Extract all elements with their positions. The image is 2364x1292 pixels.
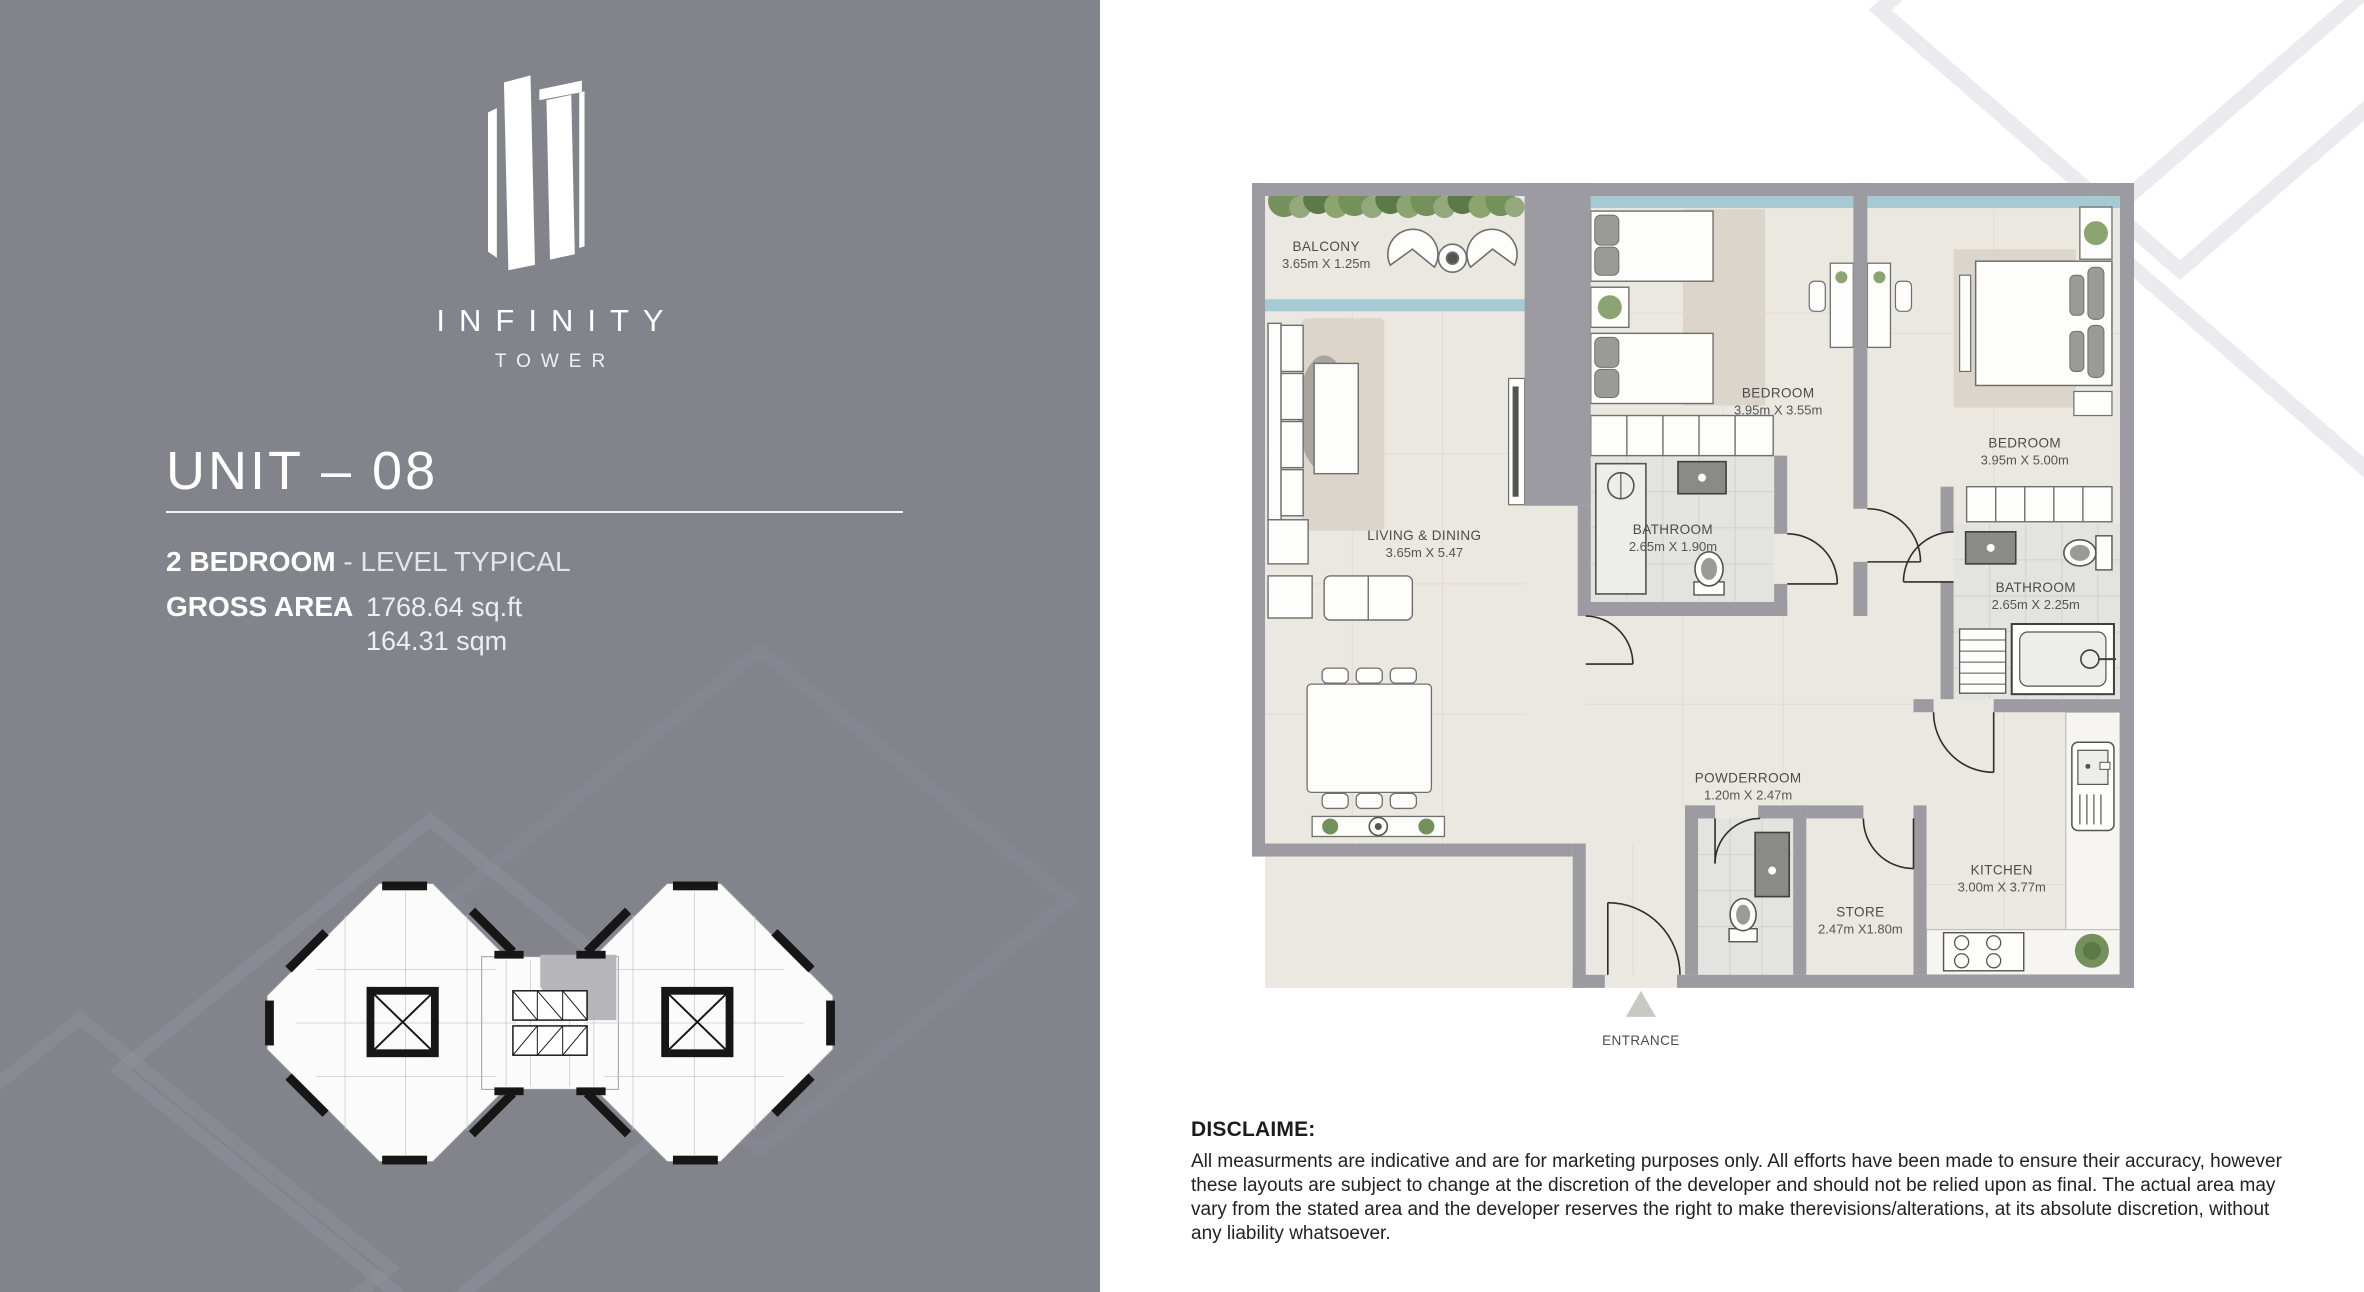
console-table [1312, 816, 1444, 836]
svg-text:3.00m X 3.77m: 3.00m X 3.77m [1958, 880, 2046, 895]
svg-text:2.65m X 1.90m: 2.65m X 1.90m [1629, 539, 1717, 554]
svg-text:BATHROOM: BATHROOM [1996, 580, 2076, 595]
wardrobe [1591, 416, 1773, 456]
tv-unit [1509, 378, 1525, 504]
svg-text:BEDROOM: BEDROOM [1988, 436, 2061, 451]
svg-text:LIVING & DINING: LIVING & DINING [1367, 528, 1481, 543]
plan-panel: BALCONY 3.65m X 1.25m LIVING & DINING 3.… [1100, 0, 2364, 1292]
wardrobe [1967, 487, 2112, 522]
info-panel: INFINITY TOWER UNIT – 08 2 BEDROOM - LEV… [0, 0, 1100, 1292]
svg-text:BATHROOM: BATHROOM [1633, 522, 1713, 537]
dining-table [1307, 668, 1431, 808]
disclaimer-body: All measurments are indicative and are f… [1191, 1150, 2299, 1246]
svg-text:STORE: STORE [1836, 905, 1884, 920]
svg-text:1.20m X 2.47m: 1.20m X 2.47m [1704, 787, 1792, 802]
kitchen-sink [2072, 742, 2114, 830]
svg-text:3.95m X 5.00m: 3.95m X 5.00m [1981, 453, 2069, 468]
shower [1755, 832, 1789, 896]
divider-line [166, 511, 903, 513]
disclaimer: DISCLAIME: All measurments are indicativ… [1191, 1118, 2299, 1246]
entrance-label: ENTRANCE [1602, 1033, 1680, 1048]
svg-text:BALCONY: BALCONY [1292, 239, 1359, 254]
plant-icon [1598, 295, 1622, 319]
area-sqft: 1768.64 sq.ft [366, 592, 522, 623]
brochure-page: INFINITY TOWER UNIT – 08 2 BEDROOM - LEV… [0, 0, 2364, 1292]
unit-type-row: 2 BEDROOM - LEVEL TYPICAL [166, 546, 571, 578]
svg-text:3.65m X 1.25m: 3.65m X 1.25m [1282, 256, 1370, 271]
svg-text:BEDROOM: BEDROOM [1742, 385, 1815, 400]
tower-logo-icon [488, 42, 612, 300]
plant-icon [2084, 221, 2108, 245]
area-sqm: 164.31 sqm [366, 626, 507, 657]
svg-text:KITCHEN: KITCHEN [1971, 863, 2033, 878]
svg-text:3.65m X 5.47: 3.65m X 5.47 [1386, 545, 1463, 560]
disclaimer-heading: DISCLAIME: [1191, 1118, 2299, 1142]
gross-area-label: GROSS AREA [166, 591, 353, 623]
nightstand [2074, 391, 2112, 415]
bathtub [2012, 624, 2116, 694]
svg-text:2.65m X 2.25m: 2.65m X 2.25m [1992, 597, 2080, 612]
unit-title: UNIT – 08 [166, 440, 438, 502]
entrance-arrow-icon [1626, 991, 1656, 1017]
level-label: - LEVEL TYPICAL [336, 546, 571, 577]
stove-icon [1944, 933, 2024, 971]
desk-chair [1895, 281, 1911, 311]
key-plan [255, 862, 845, 1184]
bench [1960, 275, 1971, 371]
toilet-icon [1694, 552, 1724, 595]
brand-name: INFINITY [0, 303, 1100, 339]
bedroom-count: 2 BEDROOM [166, 546, 336, 577]
svg-text:2.47m X1.80m: 2.47m X1.80m [1818, 922, 1903, 937]
floor-plan: BALCONY 3.65m X 1.25m LIVING & DINING 3.… [1252, 183, 2134, 1055]
svg-text:3.95m X 3.55m: 3.95m X 3.55m [1734, 403, 1822, 418]
desk-chair [1809, 281, 1825, 311]
svg-text:POWDERROOM: POWDERROOM [1695, 770, 1802, 785]
loveseat [1268, 576, 1412, 620]
toilet-icon [1729, 899, 1757, 942]
steps [1960, 629, 2006, 693]
brand-type: TOWER [0, 351, 1100, 373]
